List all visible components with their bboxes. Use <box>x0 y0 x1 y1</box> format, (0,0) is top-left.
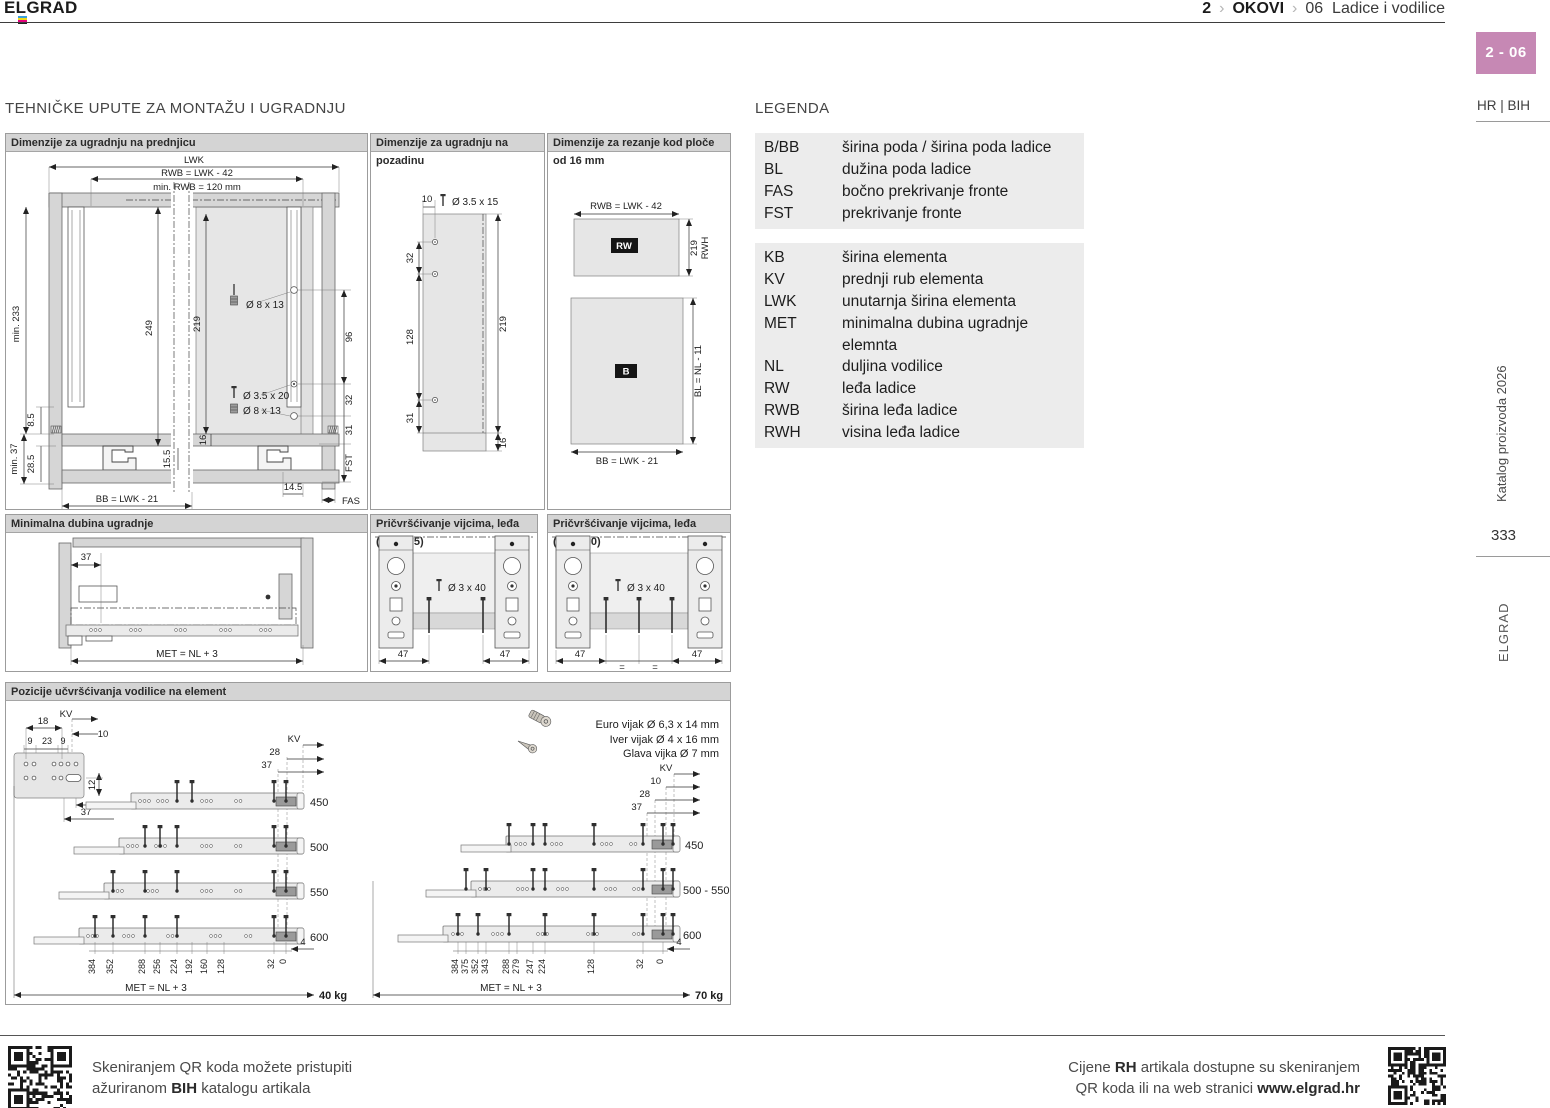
bracket-left <box>556 536 590 648</box>
bracket-left <box>379 536 413 648</box>
dim-31: 31 <box>344 425 355 436</box>
fixing-positions-diagram: 18 KV 10 9 23 9 12 28 37 <box>6 701 730 1005</box>
slide-length-label: 450 <box>310 797 328 809</box>
scale-value: 32 <box>635 959 645 969</box>
dim-18: 18 <box>38 716 49 727</box>
dim-kv: KV <box>660 763 673 774</box>
panel-title: Dimenzije za ugradnju na pozadinu <box>371 134 544 152</box>
scale-value: 32 <box>266 959 276 969</box>
qr-code-prices <box>1388 1046 1446 1106</box>
scale-value: 343 <box>480 959 490 974</box>
panel-title: Minimalna dubina ugradnje <box>6 515 367 533</box>
dim-rwb: RWB = LWK - 42 <box>590 201 662 212</box>
language-label: HR | BIH <box>1477 98 1530 113</box>
dim-37: 37 <box>631 802 642 813</box>
scale-value: 256 <box>152 959 162 974</box>
screw-label: Ø 3.5 x 15 <box>452 197 499 208</box>
legend-row: RWleđa ladice <box>755 378 1084 400</box>
dim-16: 16 <box>198 435 209 446</box>
legend-group-drawer: B/BBširina poda / širina poda ladice BLd… <box>755 133 1084 229</box>
slide-length-label: 600 <box>683 930 701 942</box>
dim-10: 10 <box>650 776 661 787</box>
panel-fixing-positions: Pozicije učvršćivanja vodilice na elemen… <box>5 682 731 1005</box>
scale-value: 288 <box>137 959 147 974</box>
legend-row: FSTprekrivanje fronte <box>755 203 1084 225</box>
dim-met: MET = NL + 3 <box>125 983 187 994</box>
dim-bl: BL = NL - 11 <box>693 345 704 397</box>
dim-9: 9 <box>60 736 65 746</box>
dim-249: 249 <box>144 320 155 336</box>
screw-label: Ø 3 x 40 <box>627 583 665 594</box>
panel-title: Pozicije učvršćivanja vodilice na elemen… <box>6 683 730 701</box>
bracket-right <box>495 536 529 648</box>
panel-front-mounting: Dimenzije za ugradnju na prednjicu LWK <box>5 133 368 510</box>
slide-450 <box>461 823 680 852</box>
dim-bb: BB = LWK - 21 <box>96 494 158 505</box>
dim-8-5: 8.5 <box>26 413 37 426</box>
euro-screw-icon <box>528 709 553 729</box>
panel-title: Dimenzije za ugradnju na prednjicu <box>6 134 367 152</box>
page-title: TEHNIČKE UPUTE ZA MONTAŽU I UGRADNJU <box>5 100 346 117</box>
rear-mounting-diagram: 10 Ø 3.5 x 15 32 128 31 219 16 <box>371 152 544 510</box>
breadcrumb: 2›OKOVI›06 Ladice i vodilice <box>1202 0 1445 18</box>
slide-length-label: 450 <box>685 840 703 852</box>
footer-rh-bold: RH <box>1115 1059 1137 1076</box>
dim-28: 28 <box>639 789 650 800</box>
bracket-right <box>688 536 722 648</box>
dim-23: 23 <box>42 736 52 746</box>
scale-value: 352 <box>470 959 480 974</box>
cutting-dims-diagram: RWB = LWK - 42 RW 219 RWH B BL = NL - 11… <box>548 152 730 510</box>
slide-500 <box>74 825 304 854</box>
min-depth-diagram: 37 MET = NL + 3 <box>6 533 367 672</box>
dim-min-rwb: min. RWB = 120 mm <box>153 182 241 193</box>
chipboard-screw-icon <box>516 737 538 754</box>
legend-group-slide: NLduljina vodilice RWleđa ladice RWBširi… <box>755 352 1084 448</box>
dim-219: 219 <box>689 240 700 256</box>
scale-value: 279 <box>511 959 521 974</box>
dim-rwh: RWH <box>700 237 711 260</box>
dim-equal: = <box>652 662 658 672</box>
dim-equal: = <box>619 662 625 672</box>
legend-row: METminimalna dubina ugradnje elemnta <box>755 313 1084 357</box>
scale-value: 352 <box>105 959 115 974</box>
slide-600 <box>398 913 680 942</box>
slide-length-label: 500 - 550 <box>683 885 729 897</box>
sidebar-divider <box>1476 556 1550 557</box>
scale-value: 224 <box>169 959 179 974</box>
panel-title: Pričvršćivanje vijcima, leđa (KB≥275) <box>371 515 537 533</box>
dim-fst: FST <box>344 454 355 472</box>
dim-bb: BB = LWK - 21 <box>596 456 658 467</box>
section-badge: 2 - 06 <box>1476 32 1536 74</box>
scale-value: 384 <box>450 959 460 974</box>
dim-16: 16 <box>498 438 509 449</box>
dim-14-5: 14.5 <box>284 482 303 493</box>
catalog-page: ELGRAD 2›OKOVI›06 Ladice i vodilice 2 - … <box>0 0 1550 1108</box>
dim-47: 47 <box>398 649 409 660</box>
dim-met: MET = NL + 3 <box>480 983 542 994</box>
brand-logo-text: ELGRAD <box>4 0 78 18</box>
chevron-right-icon: › <box>1292 0 1297 17</box>
footer-left-text: Skeniranjem QR koda možete pristupiti až… <box>92 1057 352 1099</box>
dim-10: 10 <box>98 729 109 740</box>
legend-row: KVprednji rub elementa <box>755 269 1084 291</box>
dim-37: 37 <box>81 552 92 563</box>
scale-value: 224 <box>537 959 547 974</box>
scale-value: 128 <box>216 959 226 974</box>
scale-value: 247 <box>525 959 535 974</box>
footer-right-text: Cijene RH artikala dostupne su skeniranj… <box>1068 1057 1360 1099</box>
dim-37: 37 <box>261 760 272 771</box>
scale-value: 384 <box>87 959 97 974</box>
breadcrumb-chapter: OKOVI <box>1232 0 1284 17</box>
footer-rule <box>0 1035 1445 1036</box>
breadcrumb-subchapter-no: 06 <box>1305 0 1323 17</box>
legend-row: BLdužina poda ladice <box>755 159 1084 181</box>
dim-47: 47 <box>575 649 586 660</box>
legend-group-element: KBširina elementa KVprednji rub elementa… <box>755 243 1084 361</box>
dim-min37: min. 37 <box>9 443 20 474</box>
legend-row: FASbočno prekrivanje fronte <box>755 181 1084 203</box>
dim-4: 4 <box>300 937 305 948</box>
legend-row: B/BBširina poda / širina poda ladice <box>755 137 1084 159</box>
legend-row: NLduljina vodilice <box>755 356 1084 378</box>
dim-4: 4 <box>676 937 681 948</box>
slide-length-label: 500 <box>310 842 328 854</box>
scale-value: 375 <box>460 959 470 974</box>
rear-fixing-275-diagram: Ø 3 x 40 47 47 <box>371 533 537 672</box>
dim-15-5: 15.5 <box>162 450 173 469</box>
footer-bih-bold: BIH <box>171 1080 197 1097</box>
slide-length-label: 550 <box>310 887 328 899</box>
dim-10: 10 <box>422 194 433 205</box>
panel-min-depth: Minimalna dubina ugradnje 37 MET = NL + … <box>5 514 368 672</box>
panel-rear-mounting: Dimenzije za ugradnju na pozadinu 10 Ø 3… <box>370 133 545 510</box>
slide-stack-70kg: KV 10 28 37 450 <box>373 763 729 1002</box>
panel-title: Pričvršćivanje vijcima, leđa (KB≥600) <box>548 515 730 533</box>
dim-31: 31 <box>405 413 416 424</box>
rear-fixing-600-diagram: Ø 3 x 40 47 = = 47 <box>548 533 730 672</box>
slide-550 <box>59 870 304 899</box>
dim-28: 28 <box>269 747 280 758</box>
slide-500-550 <box>426 868 680 897</box>
dim-47: 47 <box>692 649 703 660</box>
load-rating: 40 kg <box>319 990 347 1002</box>
chevron-right-icon: › <box>1219 0 1224 17</box>
legend-row: RWBširina leđa ladice <box>755 400 1084 422</box>
dim-kv: KV <box>288 734 301 745</box>
dim-met: MET = NL + 3 <box>156 649 218 660</box>
euro-screw-label: Euro vijak Ø 6,3 x 14 mm <box>596 719 720 731</box>
panel-title: Dimenzije za rezanje kod ploče od 16 mm <box>548 134 730 152</box>
dim-32: 32 <box>344 395 355 406</box>
dim-12: 12 <box>87 780 98 791</box>
qr-code-bih-catalog <box>8 1046 72 1108</box>
dowel-label: Ø 8 x 13 <box>246 300 284 311</box>
panel-rear-fixing-275: Pričvršćivanje vijcima, leđa (KB≥275) <box>370 514 538 672</box>
scale-value: 0 <box>655 959 665 964</box>
dim-9: 9 <box>27 736 32 746</box>
dim-32: 32 <box>405 253 416 264</box>
scale-value: 0 <box>278 959 288 964</box>
screw-label: Ø 3 x 40 <box>448 583 486 594</box>
scale-value: 128 <box>586 959 596 974</box>
dim-rwb: RWB = LWK - 42 <box>161 168 233 179</box>
panel-rear-fixing-600: Pričvršćivanje vijcima, leđa (KB≥600) <box>547 514 731 672</box>
label-rw: RW <box>616 241 632 252</box>
dim-128: 128 <box>405 329 416 345</box>
dowel-label: Ø 8 x 13 <box>243 406 281 417</box>
slide-length-label: 600 <box>310 932 328 944</box>
slide-450 <box>86 780 304 809</box>
legend-row: RWHvisina leđa ladice <box>755 422 1084 444</box>
screw-label: Ø 3.5 x 20 <box>243 391 290 402</box>
scale-value: 160 <box>199 959 209 974</box>
load-rating: 70 kg <box>695 990 723 1002</box>
panel-cutting-dims: Dimenzije za rezanje kod ploče od 16 mm … <box>547 133 731 510</box>
header-rule <box>0 22 1445 23</box>
footer-url-bold: www.elgrad.hr <box>1257 1080 1360 1097</box>
dim-47: 47 <box>500 649 511 660</box>
dim-min233: min. 233 <box>11 306 22 342</box>
page-number: 333 <box>1491 527 1516 544</box>
breadcrumb-subchapter: Ladice i vodilice <box>1332 0 1445 17</box>
scale-value: 192 <box>184 959 194 974</box>
dim-219: 219 <box>498 316 509 332</box>
dim-fas: FAS <box>342 496 360 507</box>
front-mounting-diagram: LWK RWB = LWK - 42 min. RWB = 120 mm min… <box>6 152 367 510</box>
label-b: B <box>623 367 630 378</box>
sidebar-divider <box>1476 121 1550 122</box>
legend-row: KBširina elementa <box>755 247 1084 269</box>
legend-title: LEGENDA <box>755 100 830 117</box>
dim-96: 96 <box>344 332 355 343</box>
dim-kv: KV <box>60 709 73 720</box>
catalog-edition-vertical: Katalog proizvoda 2026 <box>1494 332 1509 502</box>
dim-lwk: LWK <box>184 155 205 166</box>
chipboard-screw-label: Iver vijak Ø 4 x 16 mm <box>610 734 719 746</box>
screw-legend: Euro vijak Ø 6,3 x 14 mm Iver vijak Ø 4 … <box>516 709 719 760</box>
legend-row: LWKunutarnja širina elementa <box>755 291 1084 313</box>
dim-28-5: 28.5 <box>26 455 37 474</box>
slide-600 <box>34 915 304 944</box>
screw-head-label: Glava vijka Ø 7 mm <box>623 748 719 760</box>
scale-value: 288 <box>501 959 511 974</box>
dim-219: 219 <box>192 316 203 332</box>
breadcrumb-section: 2 <box>1202 0 1211 17</box>
brand-vertical: ELGRAD <box>1496 596 1511 662</box>
